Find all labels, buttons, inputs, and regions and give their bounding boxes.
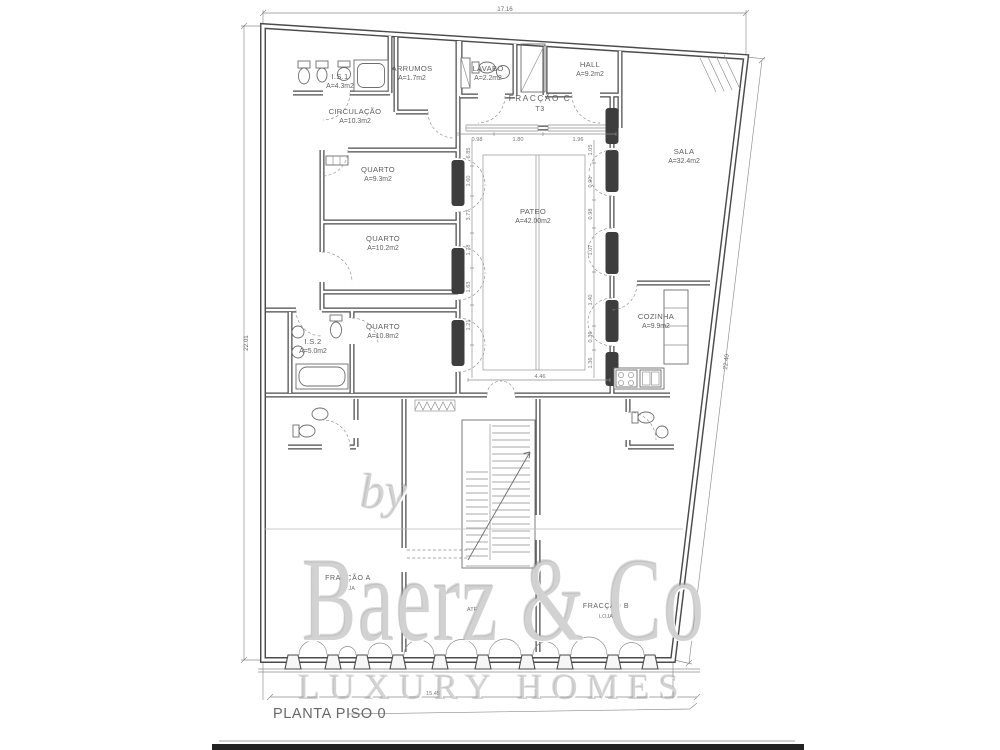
pateo-dim: 6.85 — [466, 148, 472, 159]
floor-plan-page: 17.16 22.01 22.40 15.45 — [0, 0, 1000, 750]
room-label: LAVABO — [472, 64, 503, 73]
interior-walls — [266, 36, 710, 652]
room-label: QUARTO — [366, 322, 400, 331]
fraction-c-label: FRACÇÃO C — [509, 93, 572, 103]
shower-icon — [354, 60, 388, 91]
pateo-dim: 1.63 — [466, 282, 472, 293]
next-image-edge — [212, 744, 804, 750]
room-area: A=5.0m2 — [299, 348, 327, 355]
room-label: CIRCULAÇÃO — [329, 107, 382, 116]
room-area: A=9.2m2 — [576, 71, 604, 78]
room-area: A=10.3m2 — [339, 118, 371, 125]
dim-right: 22.40 — [722, 353, 731, 370]
fraction-a-label: FRACÇÃO A — [325, 573, 371, 582]
room-area: A=32.4m2 — [668, 158, 700, 165]
room-area: A=42.00m2 — [515, 218, 551, 225]
title-underline — [348, 703, 697, 714]
pateo-dim: 1.96 — [573, 137, 584, 143]
storefront — [258, 637, 700, 672]
pateo-dim: 1.05 — [588, 145, 594, 156]
room-area: A=2.2m2 — [474, 75, 502, 82]
room-label: HALL — [580, 60, 600, 69]
toilet-icon — [298, 61, 310, 84]
room-area: A=4.3m2 — [326, 83, 354, 90]
room-area: A=9.3m2 — [364, 176, 392, 183]
footer-light-line — [219, 740, 795, 742]
staircase — [407, 400, 535, 568]
room-label: SALA — [674, 147, 695, 156]
entry-steps-hatch — [700, 55, 740, 92]
plan-title: PLANTA PISO 0 — [273, 706, 386, 722]
room-label: COZINHA — [638, 312, 675, 321]
pateo-dim: 1.78 — [466, 245, 472, 256]
fraction-b-label: FRACÇÃO B — [583, 601, 629, 610]
room-label: QUARTO — [361, 165, 395, 174]
shop-b-bath-fixtures — [632, 412, 668, 438]
bidet-icon — [316, 61, 328, 82]
pateo-dim: 4.46 — [535, 374, 546, 380]
pateo-dim: 1.40 — [588, 295, 594, 306]
fixtures — [292, 44, 740, 438]
room-area: A=1.7m2 — [398, 75, 426, 82]
pateo-dim: 1.07 — [588, 245, 594, 256]
floor-plan-drawing: 17.16 22.01 22.40 15.45 — [0, 0, 1000, 750]
dim-left: 22.01 — [243, 335, 250, 351]
shaft — [521, 44, 545, 92]
room-area: A=10.2m2 — [367, 245, 399, 252]
pateo-dimension-chains: 0.98 1.80 1.96 6.85 1.60 3.77 1.78 1.63 … — [458, 132, 616, 382]
dim-top: 17.16 — [497, 6, 513, 13]
fraction-c-type: T3 — [535, 106, 544, 113]
room-label: I.S.2 — [304, 337, 321, 346]
pateo-dim: 1.80 — [513, 137, 524, 143]
pateo-dim: 3.77 — [466, 210, 472, 221]
fraction-a-use: LOJA — [341, 586, 355, 592]
pateo-dim: 1.21 — [466, 320, 472, 331]
lavabo-fixtures — [461, 58, 510, 88]
pateo-dim: 0.90 — [588, 177, 594, 188]
closet-shelf — [326, 156, 348, 165]
fraction-b-use: LOJA — [599, 614, 613, 620]
ramp-hatch — [415, 400, 455, 411]
room-area: A=10.8m2 — [367, 333, 399, 340]
stairwell-label: ATF — [467, 607, 478, 613]
pateo-dim: 0.36 — [588, 332, 594, 343]
kitchen-counter — [614, 290, 688, 389]
pateo-dim: 0.98 — [472, 137, 483, 143]
pateo-dim: 1.36 — [588, 358, 594, 369]
room-label: I.S.1 — [331, 72, 348, 81]
room-label: ARRUMOS — [392, 64, 433, 73]
room-label: QUARTO — [366, 234, 400, 243]
room-area: A=9.9m2 — [642, 323, 670, 330]
shop-a-bath-fixtures — [293, 408, 328, 437]
pateo-floor-outline — [483, 155, 585, 370]
pateo-dim: 1.60 — [466, 176, 472, 187]
room-label: PATEO — [520, 207, 546, 216]
dim-bottom: 15.45 — [426, 691, 440, 697]
pateo-dim: 0.98 — [588, 209, 594, 220]
